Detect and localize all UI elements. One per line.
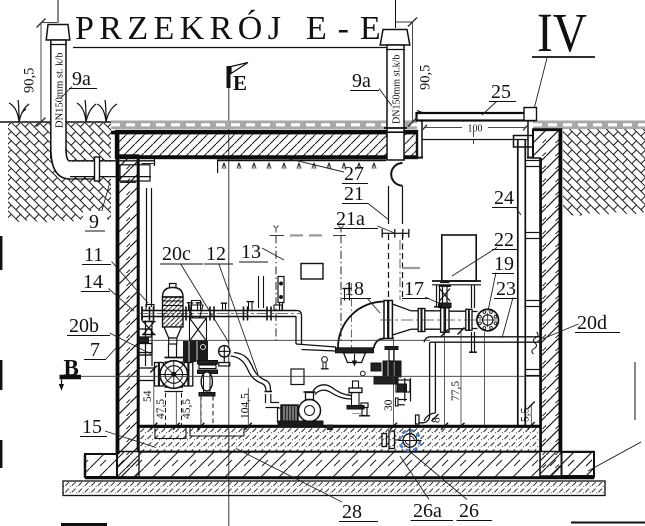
svg-text:8: 8 [431,417,443,423]
svg-text:14: 14 [83,271,103,293]
svg-text:E - E: E - E [306,10,382,47]
svg-text:45,5: 45,5 [181,399,193,419]
svg-text:18: 18 [344,278,364,300]
svg-text:90,5: 90,5 [418,65,434,90]
svg-text:PRZEKRÓJ: PRZEKRÓJ [75,9,286,47]
svg-text:100: 100 [468,124,483,135]
svg-text:17: 17 [404,278,424,300]
svg-text:20b: 20b [69,315,99,337]
svg-text:23: 23 [496,278,516,300]
svg-text:25: 25 [491,81,511,103]
svg-text:12: 12 [206,243,226,265]
svg-text:26: 26 [459,500,479,522]
svg-text:26a: 26a [413,500,442,522]
svg-text:20c: 20c [162,243,191,265]
svg-text:30: 30 [383,399,395,411]
svg-text:E: E [233,71,247,95]
svg-text:9: 9 [89,211,99,233]
svg-text:13: 13 [241,241,261,263]
svg-text:20d: 20d [577,312,607,334]
svg-text:21a: 21a [336,208,365,230]
svg-text:104,5: 104,5 [240,393,252,419]
svg-text:9a: 9a [72,68,91,90]
svg-text:22: 22 [494,229,514,251]
svg-text:19: 19 [494,253,514,275]
svg-text:15: 15 [82,416,102,438]
svg-text:24: 24 [494,187,514,209]
svg-text:7: 7 [90,339,100,361]
svg-text:47,5: 47,5 [155,399,167,419]
svg-text:DN150mm st. k/b: DN150mm st. k/b [55,52,66,128]
svg-text:77,5: 77,5 [450,381,462,401]
svg-text:DN150mm st.k/b: DN150mm st.k/b [392,55,403,124]
svg-text:IV: IV [537,2,587,63]
svg-text:54: 54 [142,390,154,402]
svg-text:28: 28 [342,501,362,523]
svg-text:5,5: 5,5 [520,407,532,422]
svg-text:11: 11 [84,244,103,266]
svg-text:27: 27 [344,163,364,185]
svg-text:21: 21 [344,183,364,205]
svg-text:9a: 9a [352,70,371,92]
svg-text:90,5: 90,5 [22,68,38,93]
